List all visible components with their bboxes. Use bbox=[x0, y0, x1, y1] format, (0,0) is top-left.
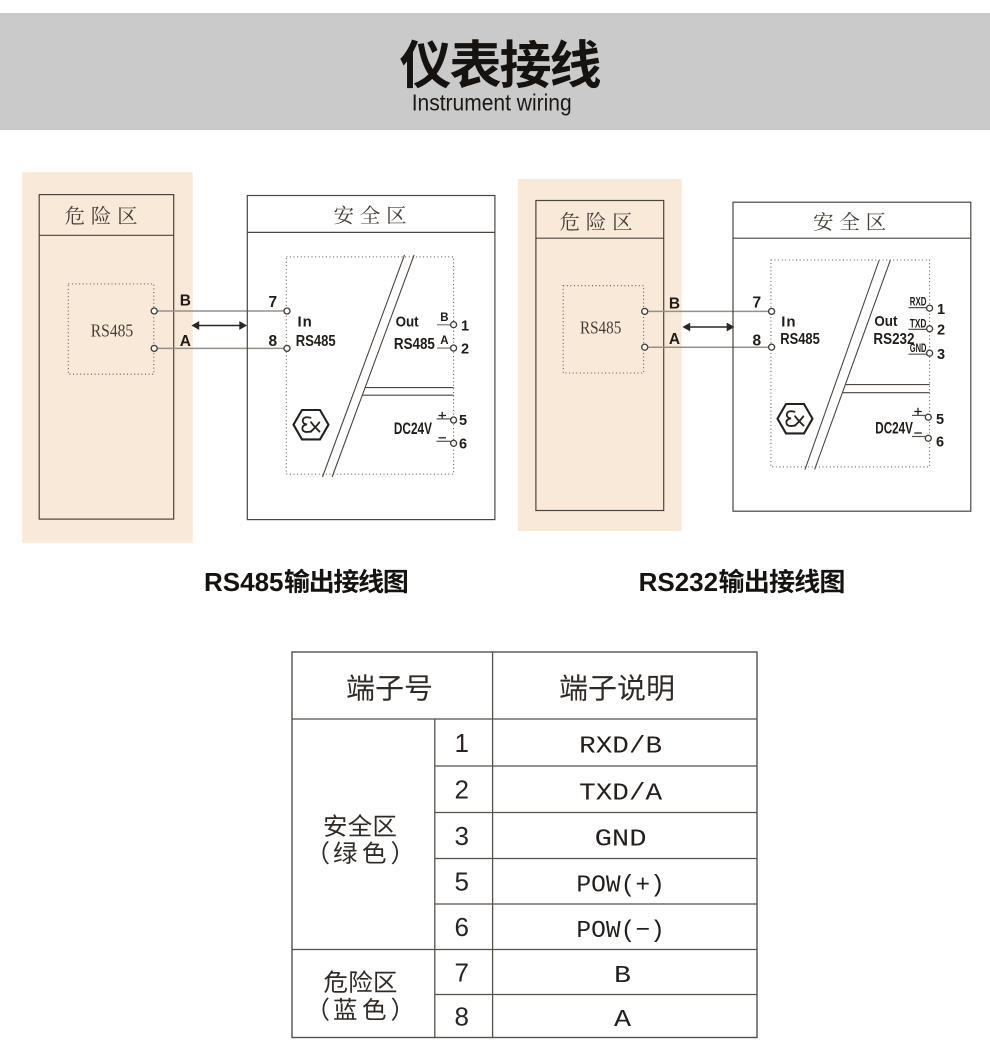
svg-text:POW(−): POW(−) bbox=[576, 918, 665, 945]
svg-text:RS485: RS485 bbox=[91, 321, 134, 341]
svg-text:1: 1 bbox=[461, 318, 469, 334]
svg-text:7: 7 bbox=[454, 957, 468, 987]
svg-text:1: 1 bbox=[454, 728, 468, 758]
svg-text:DC24V: DC24V bbox=[394, 419, 433, 438]
svg-text:TXD: TXD bbox=[910, 318, 927, 330]
svg-text:RS485: RS485 bbox=[204, 567, 284, 597]
svg-text:B: B bbox=[614, 963, 631, 990]
svg-text:A: A bbox=[614, 1007, 631, 1034]
svg-text:B: B bbox=[669, 295, 680, 312]
svg-text:3: 3 bbox=[454, 821, 468, 851]
svg-text:RXD: RXD bbox=[910, 297, 927, 309]
svg-text:In: In bbox=[781, 314, 796, 331]
svg-text:2: 2 bbox=[454, 775, 468, 805]
svg-text:POW(+): POW(+) bbox=[576, 872, 665, 899]
svg-text:6: 6 bbox=[454, 912, 468, 942]
svg-text:Instrument wiring: Instrument wiring bbox=[412, 90, 572, 116]
svg-text:A: A bbox=[669, 331, 680, 348]
svg-text:B: B bbox=[180, 293, 191, 310]
svg-text:Out: Out bbox=[874, 313, 897, 330]
svg-text:GND: GND bbox=[910, 343, 927, 355]
svg-text:RS485: RS485 bbox=[296, 333, 336, 350]
svg-text:A: A bbox=[440, 335, 448, 347]
svg-text:5: 5 bbox=[936, 412, 944, 428]
svg-text:RXD/B: RXD/B bbox=[579, 734, 662, 761]
svg-text:1: 1 bbox=[937, 302, 945, 318]
svg-text:Out: Out bbox=[396, 314, 419, 331]
svg-text:2: 2 bbox=[461, 342, 469, 358]
svg-text:7: 7 bbox=[269, 294, 278, 311]
svg-text:RS485: RS485 bbox=[580, 318, 622, 338]
svg-text:7: 7 bbox=[753, 295, 762, 312]
svg-text:RS232: RS232 bbox=[873, 331, 914, 348]
svg-text:GND: GND bbox=[595, 827, 647, 854]
svg-text:In: In bbox=[298, 314, 313, 331]
svg-text:RS485: RS485 bbox=[780, 331, 820, 348]
svg-text:RS232: RS232 bbox=[639, 567, 719, 597]
svg-text:5: 5 bbox=[454, 867, 468, 897]
svg-text:6: 6 bbox=[936, 435, 944, 451]
svg-text:8: 8 bbox=[753, 333, 762, 350]
svg-text:8: 8 bbox=[454, 1001, 468, 1031]
svg-text:3: 3 bbox=[937, 347, 945, 363]
svg-text:6: 6 bbox=[459, 436, 467, 452]
svg-text:TXD/A: TXD/A bbox=[579, 780, 662, 807]
svg-text:5: 5 bbox=[459, 413, 467, 429]
svg-text:2: 2 bbox=[937, 322, 945, 338]
svg-text:A: A bbox=[180, 333, 191, 350]
svg-text:RS485: RS485 bbox=[394, 336, 435, 353]
svg-text:8: 8 bbox=[269, 333, 278, 350]
svg-text:DC24V: DC24V bbox=[875, 419, 913, 438]
svg-text:B: B bbox=[440, 312, 448, 324]
